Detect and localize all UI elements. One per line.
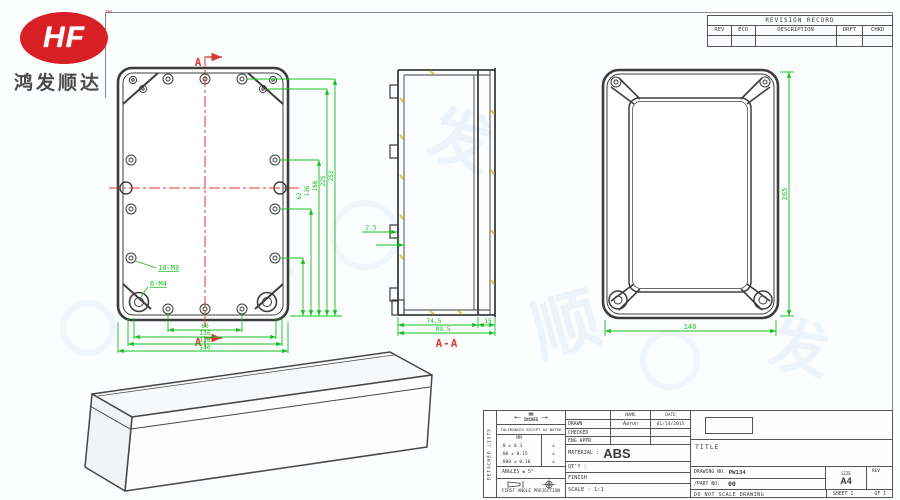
projection-label: FIRST ANGLE PROJECTION (497, 489, 565, 494)
rev-label: REV (872, 469, 880, 474)
sheet-number: SHEET 1 (833, 492, 853, 498)
svg-text:166: 166 (312, 180, 319, 191)
drawn-row: DRAWN Aaron 01/14/2015 (566, 420, 690, 429)
svg-text:89.5: 89.5 (436, 326, 451, 333)
no-scale-note: DO NOT SCALE DRAWING (694, 492, 764, 498)
eng-appr-label: ENG APPR (568, 439, 591, 444)
svg-text:225: 225 (320, 175, 327, 186)
qty-row: QT'Y : (566, 462, 690, 473)
section-dim-labels: 74.5 15 89.5 (427, 318, 492, 333)
section-letter-top: A (195, 56, 202, 69)
name-date-header: NAME DATE (566, 411, 690, 420)
eng-appr-row: ENG APPR (566, 437, 690, 445)
size-value: A4 (840, 476, 852, 486)
tolerance-block: ◂— MM INCHES —▸ TOLERANCES EXCEPT AS NOT… (497, 411, 566, 497)
svg-text:15: 15 (484, 318, 492, 325)
svg-text:253: 253 (328, 170, 335, 181)
drawn-date: 01/14/2015 (650, 420, 690, 428)
side-strip: DETACHED LISTS (484, 411, 497, 497)
checked-label: CHECKED (568, 431, 588, 436)
back-height-dim: 265 (781, 188, 789, 201)
checked-row: CHECKED (566, 429, 690, 437)
projection-cell: FIRST ANGLE PROJECTION (497, 479, 565, 497)
units-secondary: INCHES (524, 418, 538, 423)
rev-cell: REV (867, 467, 892, 489)
svg-text:140: 140 (199, 345, 210, 352)
date-header: DATE (650, 411, 690, 419)
approval-block: NAME DATE DRAWN Aaron 01/14/2015 CHECKED… (566, 411, 691, 497)
isometric-view (85, 352, 432, 491)
drawing-no-area: DRAWING NO. PW134 /PART NO. 00 SIZE A4 R… (691, 466, 892, 497)
title-cell: TITLE (691, 439, 892, 466)
back-view: 265 140 (603, 70, 794, 336)
back-width-dim: 140 (684, 323, 697, 331)
svg-text:116: 116 (304, 185, 311, 196)
tol-row-mm: .00 ± 0.15 (497, 451, 542, 459)
drawn-name: Aaron (610, 420, 650, 428)
front-view: A A 62 116 166 225 (109, 56, 342, 353)
material-label: MATERIAL : (568, 450, 599, 456)
title-area-block: TITLE DRAWING NO. PW134 /PART NO. 00 SIZ… (691, 411, 892, 497)
section-hatch-marks (400, 71, 494, 314)
sheet-row: DO NOT SCALE DRAWING SHEET 1 OF 1 (691, 489, 892, 498)
size-cell: SIZE A4 (826, 467, 867, 489)
part-no-row: /PART NO. 00 (691, 478, 826, 489)
svg-text:62: 62 (296, 192, 303, 200)
section-label: A-A (436, 337, 459, 350)
svg-text:74.5: 74.5 (427, 318, 442, 325)
drawing-no-row: DRAWING NO. PW134 (691, 467, 826, 478)
drawing-no-value: PW134 (729, 470, 746, 476)
section-view: 2.5 5 74.5 15 89.5 A-A (362, 68, 495, 350)
projection-target-icon (542, 479, 556, 490)
tolerance-grid: MM .0 ± 0.3 ± .00 ± 0.15 ± .000 ± 0.10 ± (497, 435, 565, 467)
tol-row-inch: ± (542, 459, 565, 467)
right-arrow-icon: —▸ (541, 414, 548, 421)
tol-col-header: MM (497, 435, 542, 443)
title-block: DETACHED LISTS ◂— MM INCHES —▸ TOLERANCE… (483, 410, 893, 498)
vertical-dimension-labels: 62 116 166 225 253 (296, 170, 335, 199)
sheet-cell: SHEET 1 OF 1 (826, 490, 892, 498)
first-angle-cone-icon (506, 480, 528, 489)
units-row: ◂— MM INCHES —▸ (497, 411, 565, 425)
tol-row-inch: ± (542, 451, 565, 459)
title-label: TITLE (695, 443, 720, 451)
thread-callout-m3: 10-M3 (158, 264, 179, 272)
stamp-box (705, 417, 753, 434)
lug-dim: 5 (396, 238, 400, 245)
material-row: MATERIAL : ABS (566, 445, 690, 462)
mounting-lugs (390, 85, 404, 315)
scale-row: SCALE : 1:1 (566, 484, 690, 497)
tol-row-inch: ± (542, 443, 565, 451)
tol-row-mm: .0 ± 0.3 (497, 443, 542, 451)
side-strip-label: DETACHED LISTS (484, 411, 496, 497)
drawn-label: DRAWN (568, 422, 582, 427)
part-no-label: /PART NO. (694, 482, 720, 487)
left-arrow-icon: ◂— (514, 414, 521, 421)
material-value: ABS (603, 446, 630, 461)
sheet-total: OF 1 (874, 492, 886, 498)
part-no-value: 00 (728, 480, 736, 488)
tol-row-mm: .000 ± 0.10 (497, 459, 542, 467)
drawing-sheet: 鸿 发 顺 达 顺 发 HF ™ 鸿发顺达 REVISION RECORD RE… (0, 0, 900, 500)
drawing-no-label: DRAWING NO. (694, 470, 726, 475)
svg-text:60: 60 (201, 323, 209, 330)
svg-text:126: 126 (199, 337, 210, 344)
name-header: NAME (610, 411, 650, 419)
bottom-dimension-labels: 60 116 126 140 (199, 323, 210, 352)
tolerance-note: TOLERANCES EXCEPT AS NOTED (497, 425, 565, 435)
svg-text:116: 116 (199, 330, 210, 337)
lug-offset-dim: 2.5 (365, 225, 376, 232)
angles-tolerance: ANGLES ± 5° (497, 467, 565, 479)
finish-row: FINISH (566, 473, 690, 484)
thread-callout-m4: 6-M4 (150, 280, 167, 288)
